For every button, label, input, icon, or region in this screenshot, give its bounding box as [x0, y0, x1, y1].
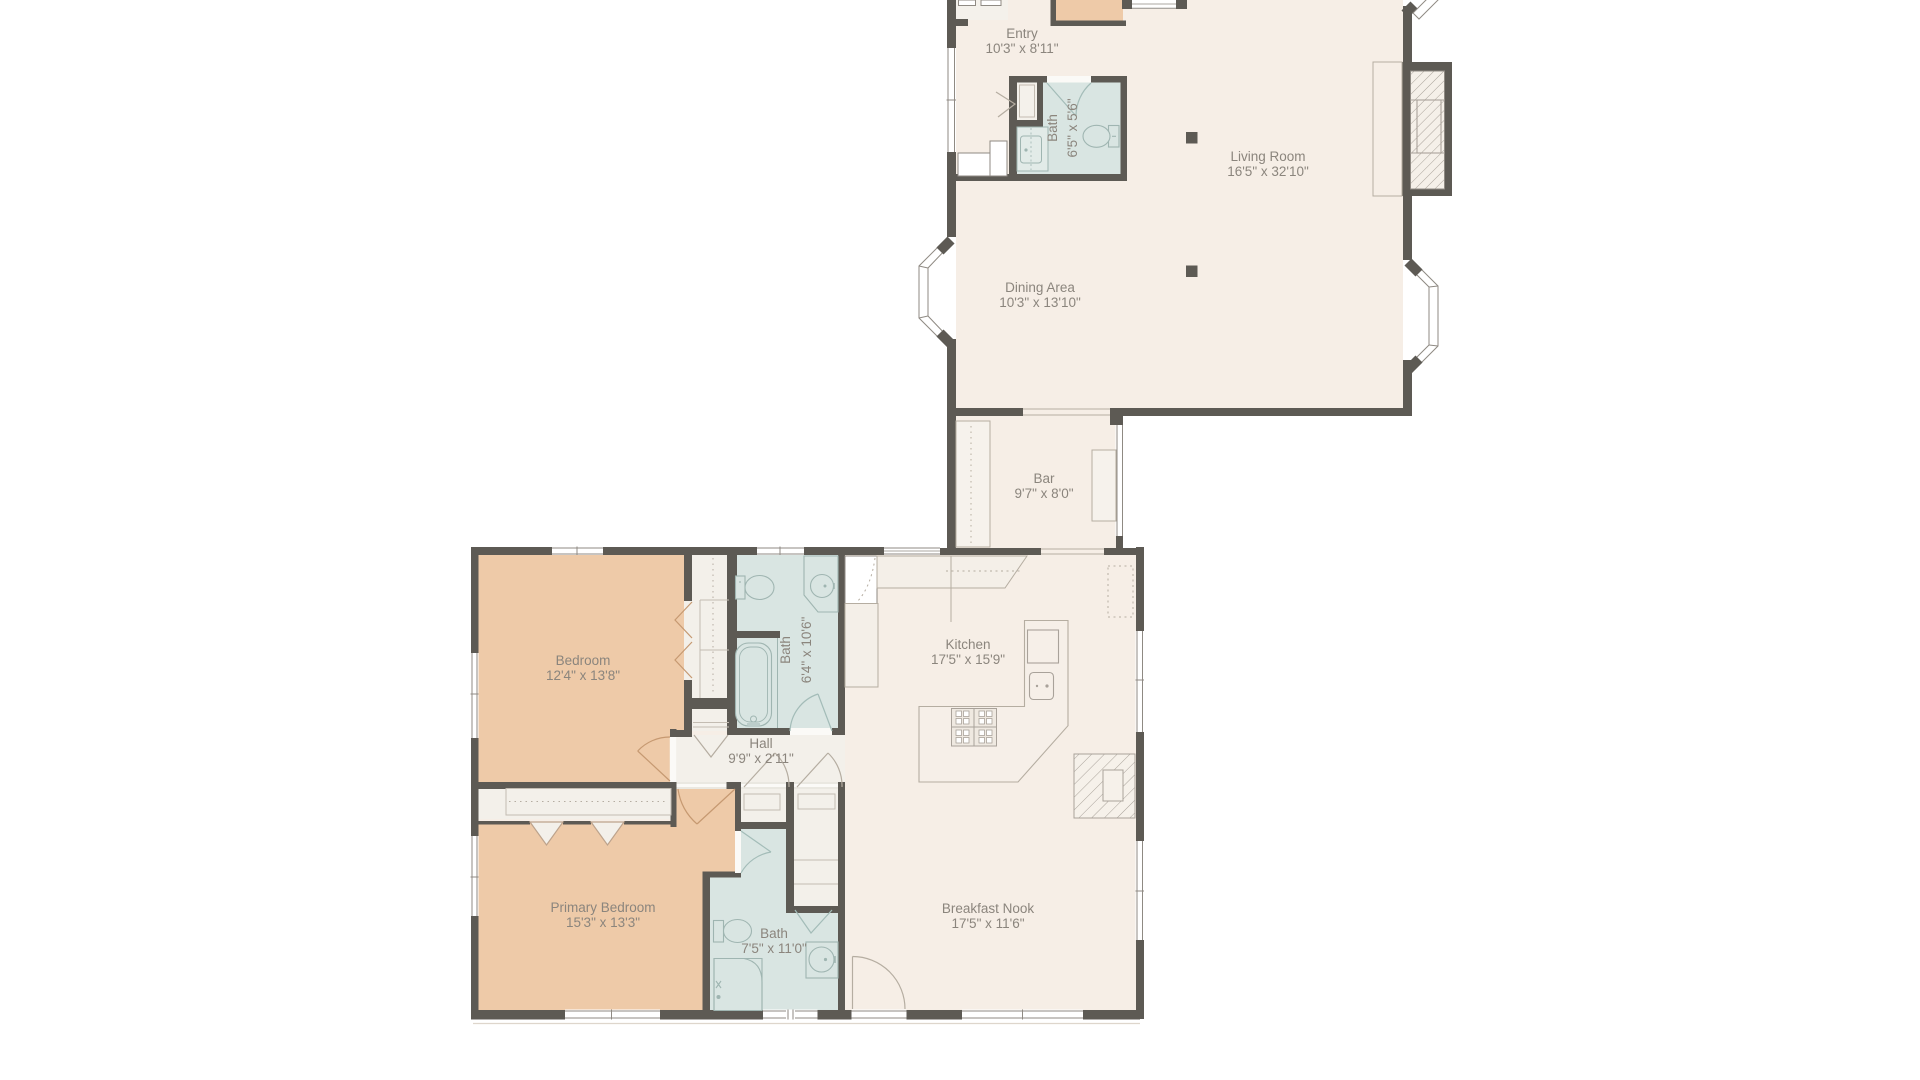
svg-text:Living Room: Living Room: [1230, 149, 1305, 164]
svg-text:Kitchen: Kitchen: [945, 637, 990, 652]
svg-text:15'3" x 13'3": 15'3" x 13'3": [566, 915, 640, 930]
svg-text:Bath: Bath: [760, 926, 788, 941]
svg-text:9'9" x 2'11": 9'9" x 2'11": [728, 751, 794, 766]
svg-text:16'5" x 32'10": 16'5" x 32'10": [1227, 164, 1309, 179]
svg-text:6'4" x 10'6": 6'4" x 10'6": [799, 617, 814, 684]
svg-text:10'3" x 8'11": 10'3" x 8'11": [985, 41, 1058, 56]
svg-text:Dining Area: Dining Area: [1005, 280, 1075, 295]
svg-text:Breakfast Nook: Breakfast Nook: [942, 901, 1035, 916]
svg-text:17'5" x 11'6": 17'5" x 11'6": [951, 916, 1024, 931]
svg-text:Entry: Entry: [1006, 26, 1038, 41]
svg-text:10'3" x 13'10": 10'3" x 13'10": [999, 295, 1081, 310]
svg-text:Bedroom: Bedroom: [556, 653, 611, 668]
svg-text:17'5" x 15'9": 17'5" x 15'9": [931, 652, 1005, 667]
svg-text:6'5" x 5'6": 6'5" x 5'6": [1065, 98, 1080, 157]
svg-text:7'5" x 11'0": 7'5" x 11'0": [741, 941, 807, 956]
svg-text:Primary Bedroom: Primary Bedroom: [550, 900, 655, 915]
svg-text:Hall: Hall: [749, 736, 772, 751]
svg-text:Bar: Bar: [1033, 471, 1055, 486]
svg-text:Bath: Bath: [778, 636, 793, 664]
svg-text:12'4" x 13'8": 12'4" x 13'8": [546, 668, 620, 683]
svg-text:Bath: Bath: [1045, 114, 1060, 142]
svg-text:9'7" x 8'0": 9'7" x 8'0": [1014, 486, 1073, 501]
